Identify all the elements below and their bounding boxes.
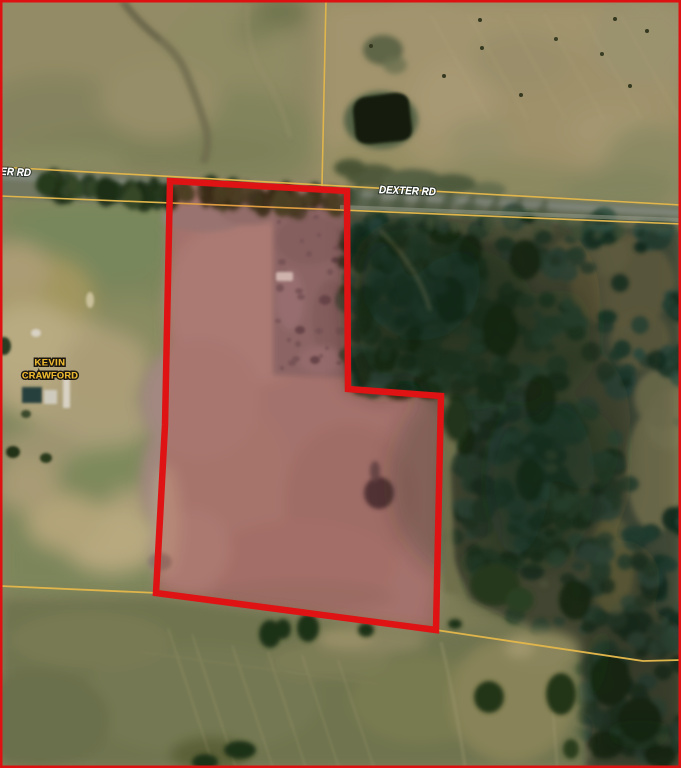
svg-text:CRAWFORD: CRAWFORD — [22, 371, 78, 381]
svg-text:DEXTER RD: DEXTER RD — [0, 165, 31, 179]
svg-text:KEVIN: KEVIN — [35, 358, 66, 368]
svg-text:DEXTER RD: DEXTER RD — [379, 184, 437, 198]
